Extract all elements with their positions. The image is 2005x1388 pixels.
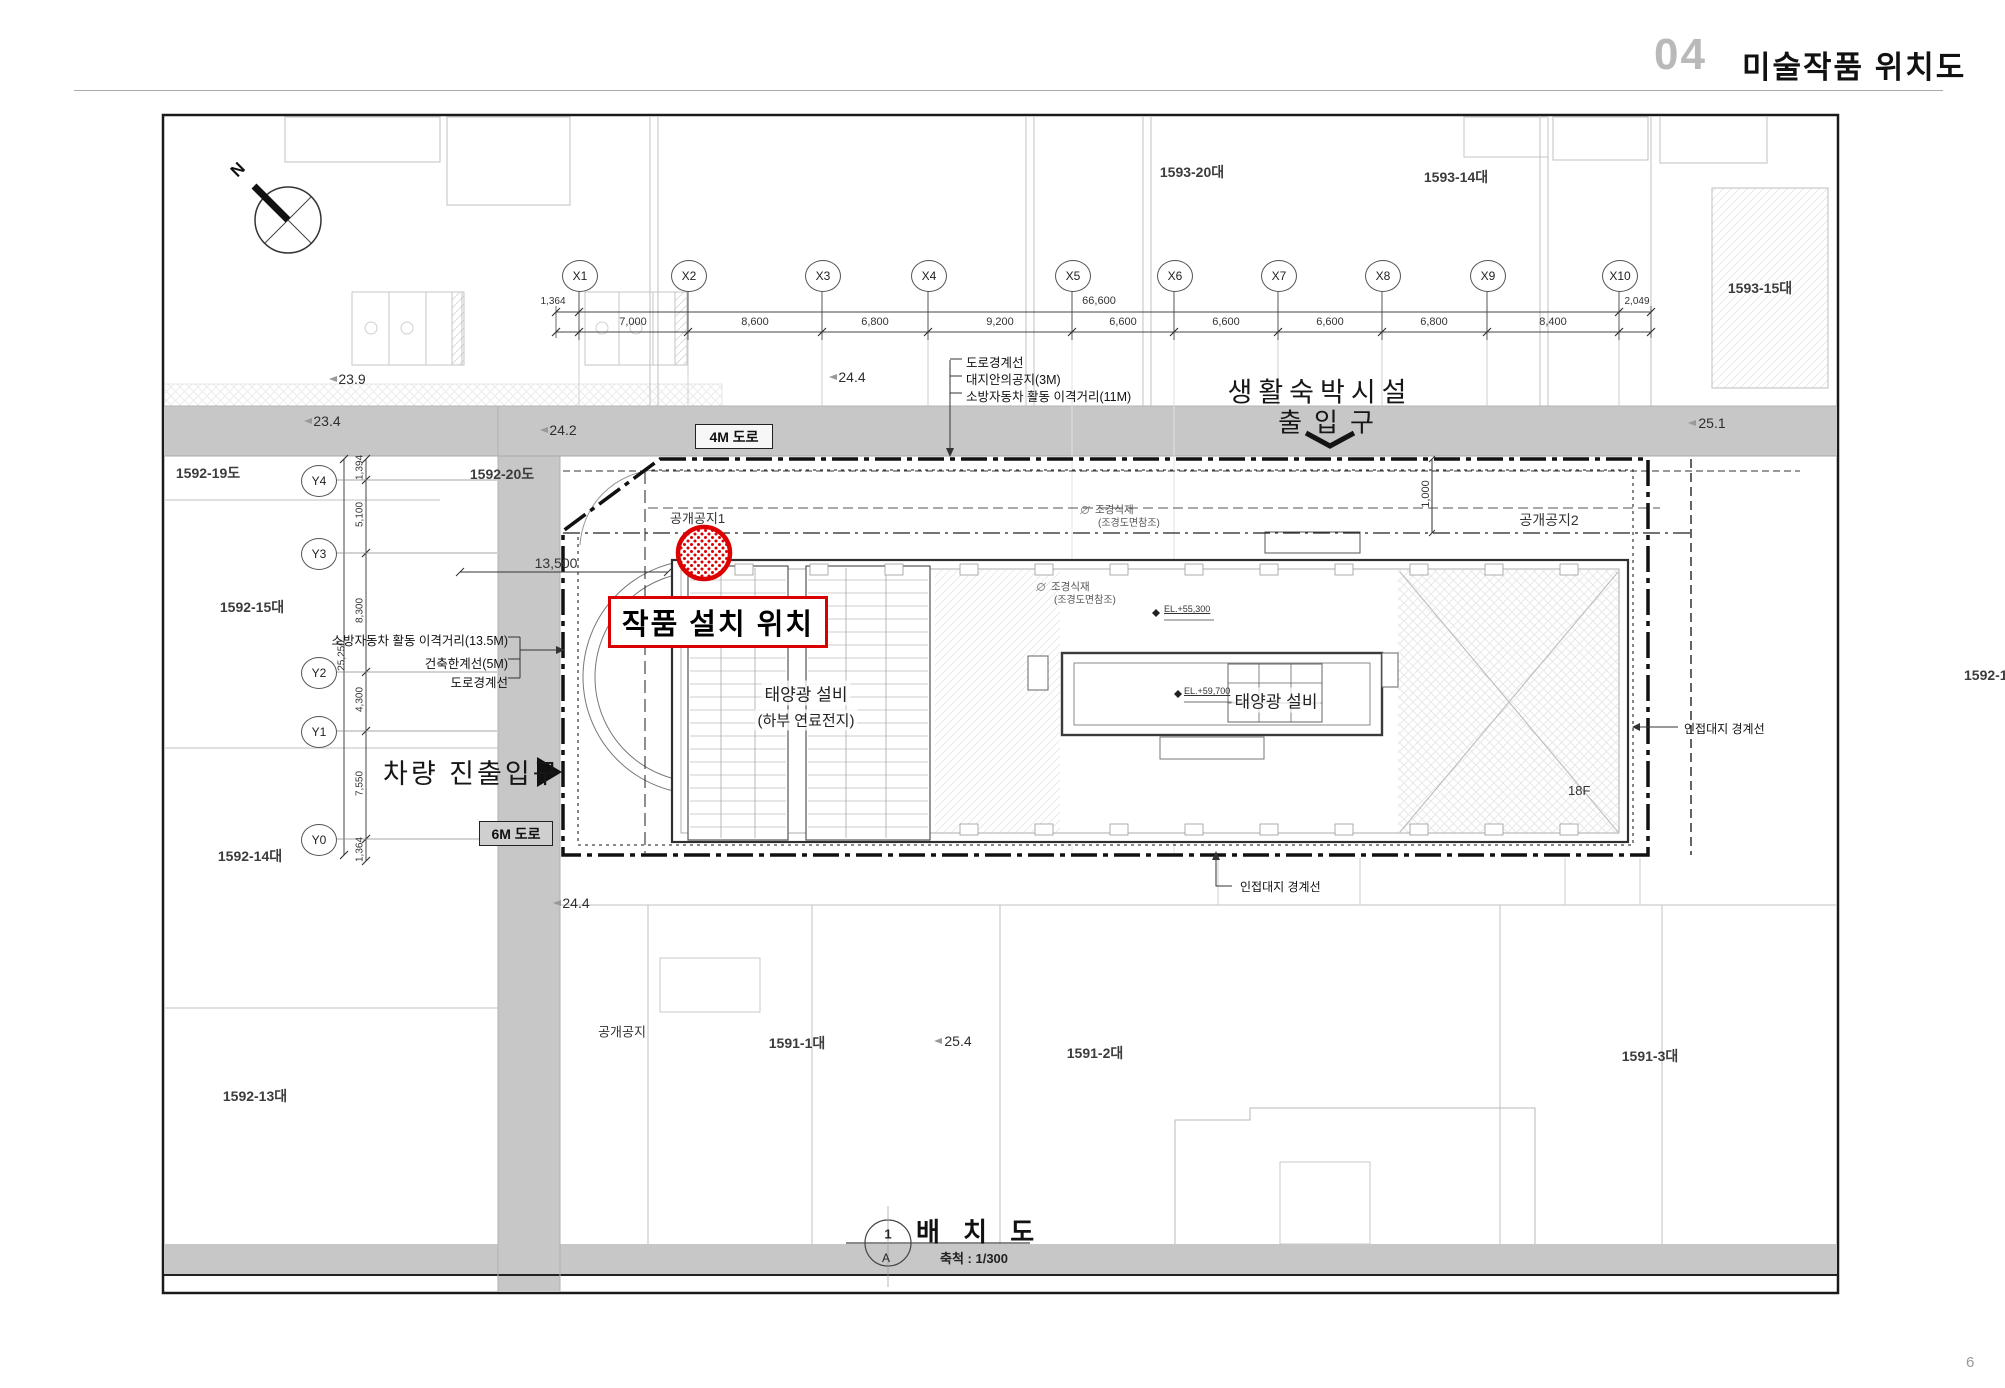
elevation-25-4: 25.4 [944,1033,971,1049]
grid-bubble-y3: Y3 [301,538,337,570]
y-dim-6: 1,364 [355,820,366,880]
grid-bubble-y0: Y0 [301,824,337,856]
slide-page: 04 미술작품 위치도 6 [0,0,2005,1388]
y-dim-2: 5,100 [355,485,366,545]
landscape-1-line2: (조경도면참조) [1098,514,1160,529]
grid-bubble-x10: X10 [1602,260,1638,292]
site-plan-canvas [0,0,2005,1388]
title-block-sheet: A [882,1251,890,1265]
lot-1593-15: 1593-15대 [1728,278,1792,298]
lot-1592-13: 1592-13대 [223,1086,287,1106]
adjacent-boundary-right-label: 인접대지 경계선 [1684,720,1765,737]
note-building-limit-5m: 건축한계선(5M) [318,653,508,672]
open-space-label: 공개공지 [598,1022,646,1041]
open-space-2-label: 공개공지2 [1519,510,1578,530]
elevation-24-4-top: 24.4 [838,369,865,385]
artwork-location-callout: 작품 설치 위치 [608,596,828,648]
dim-13500: 13,500 [535,555,578,571]
title-block-title: 배 치 도 [916,1212,1042,1249]
x-dim-total: 66,600 [1082,295,1116,307]
x-dim-3: 6,800 [861,316,889,328]
lot-1591-3: 1591-3대 [1622,1046,1678,1066]
facility-entrance: 출입구 [1278,403,1386,440]
lot-clipped-right: 1592-1 [1964,667,2005,683]
artwork-location-text: 작품 설치 위치 [622,601,814,643]
solar-label-2: 태양광 설비 [1232,688,1321,713]
x-dim-5: 6,600 [1109,316,1137,328]
x-dim-2: 8,600 [741,316,769,328]
y-dim-5: 7,550 [355,754,366,814]
solar-label-1b: (하부 연료전지) [755,710,858,731]
lot-1591-1: 1591-1대 [769,1033,825,1053]
dim-1000: 1,000 [1420,480,1432,508]
x-dim-7: 6,600 [1316,316,1344,328]
x-dim-8: 6,800 [1420,316,1448,328]
road-4m-label: 4M 도로 [695,424,773,449]
lot-1593-20: 1593-20대 [1160,162,1224,182]
el-55300-label: EL.+55,300 [1164,604,1210,614]
grid-bubble-x5: X5 [1055,260,1091,292]
x-dim-6: 6,600 [1212,316,1240,328]
elevation-23-9: 23.9 [338,371,365,387]
grid-bubble-x9: X9 [1470,260,1506,292]
x-dim-9: 8,400 [1539,316,1567,328]
x-dim-4: 9,200 [986,316,1014,328]
elevation-25-1: 25.1 [1698,415,1725,431]
x-dim-1: 7,000 [619,316,647,328]
solar-label-1: 태양광 설비 [762,681,851,706]
note-road-boundary-left: 도로경계선 [318,672,508,691]
title-block-scale: 축척 : 1/300 [940,1248,1008,1267]
note-fire-13-5m: 소방자동차 활동 이격거리(13.5M) [318,630,508,649]
adjacent-boundary-bottom-label: 인접대지 경계선 [1240,878,1321,895]
grid-bubble-y1: Y1 [301,716,337,748]
lot-1592-14: 1592-14대 [218,846,282,866]
road-6m-label: 6M 도로 [479,821,553,846]
lot-1592-19: 1592-19도 [176,463,240,483]
grid-bubble-y4: Y4 [301,465,337,497]
note-fire-11m: 소방자동차 활동 이격거리(11M) [966,386,1131,405]
grid-bubble-x1: X1 [562,260,598,292]
grid-bubble-x2: X2 [671,260,707,292]
elevation-24-2: 24.2 [549,422,576,438]
lot-1592-15: 1592-15대 [220,597,284,617]
grid-bubble-x3: X3 [805,260,841,292]
x-dim-right: 2,049 [1624,296,1649,307]
x-dim-left: 1,364 [540,296,565,307]
grid-bubble-x6: X6 [1157,260,1193,292]
open-space-1-label: 공개공지1 [670,508,725,527]
elevation-23-4: 23.4 [313,413,340,429]
vehicle-entrance-label: 차량 진출입구 [383,752,561,791]
lot-1593-14: 1593-14대 [1424,167,1488,187]
grid-bubble-x8: X8 [1365,260,1401,292]
lot-1591-2: 1591-2대 [1067,1043,1123,1063]
floor-18f-label: 18F [1568,783,1590,798]
lot-1592-20: 1592-20도 [470,464,534,484]
elevation-24-4-bottom: 24.4 [562,895,589,911]
grid-bubble-x7: X7 [1261,260,1297,292]
landscape-2-line2: (조경도면참조) [1054,591,1116,606]
artwork-location-marker [678,527,730,579]
grid-bubble-x4: X4 [911,260,947,292]
el-59700-label: EL.+59,700 [1184,686,1230,696]
title-block-number: 1 [884,1227,891,1242]
